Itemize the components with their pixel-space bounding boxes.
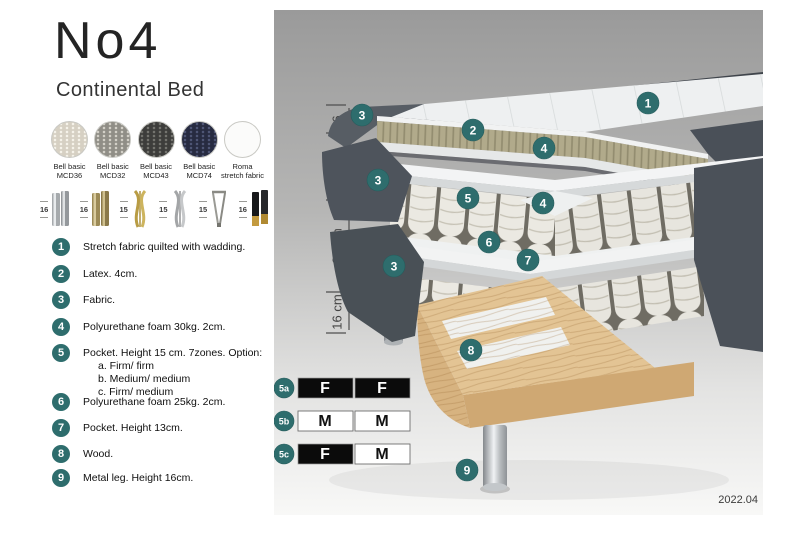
swatch-label: Bell basic MCD74 [183, 162, 215, 181]
part-description: Polyurethane foam 25kg. 2cm. [83, 393, 225, 409]
swatch-label: Roma stretch fabric [221, 162, 264, 181]
leg-height-mark: 16 [80, 201, 88, 218]
svg-text:3: 3 [375, 174, 382, 188]
black-gold-leg-icon [248, 186, 270, 232]
version-stamp: 2022.04 [718, 494, 758, 506]
callout-3-lower: 3 [383, 255, 405, 277]
svg-text:4: 4 [541, 142, 548, 156]
leg-option-brass: 16 [80, 186, 111, 232]
hairpin-leg-icon [208, 186, 230, 232]
part-item-2: 2 Latex. 4cm. [52, 265, 137, 283]
metal-leg-front [480, 425, 510, 494]
leg-options: 16 16 15 15 [40, 186, 270, 232]
swatch-mcd74: Bell basic MCD74 [179, 121, 220, 181]
leg-option-chrome: 16 [40, 186, 71, 232]
swatch-label-top: Bell basic [183, 162, 215, 171]
part-description: Polyurethane foam 30kg. 2cm. [83, 318, 225, 334]
bed-cutaway-illustration: 6 19 cm 27 cm 16 cm [274, 10, 763, 515]
fabric-swatch-circle [51, 121, 88, 158]
part-item-9: 9 Metal leg. Height 16cm. [52, 469, 193, 487]
part-number-badge: 1 [52, 238, 70, 256]
leg-option-black-gold: 16 [239, 186, 270, 232]
part-description: Metal leg. Height 16cm. [83, 469, 193, 485]
leg-option-silver-twist: 15 [159, 186, 190, 232]
part-description: Wood. [83, 445, 113, 461]
part-item-3: 3 Fabric. [52, 291, 115, 309]
fabric-swatch-circle [138, 121, 175, 158]
firmness-letter: F [320, 380, 330, 397]
svg-text:8: 8 [468, 344, 475, 358]
part-number-badge: 5 [52, 344, 70, 362]
gold-twist-leg-icon [129, 186, 151, 232]
swatch-mcd32: Bell basic MCD32 [92, 121, 133, 181]
callout-5: 5 [457, 187, 479, 209]
leg-height-mark: 16 [239, 201, 247, 218]
swatch-label-top: Roma [221, 162, 264, 171]
part-item-8: 8 Wood. [52, 445, 113, 463]
svg-text:4: 4 [540, 197, 547, 211]
swatch-label: Bell basic MCD36 [53, 162, 85, 181]
part-description: Pocket. Height 15 cm. 7zones. Option: a.… [83, 344, 262, 399]
silver-twist-leg-icon [169, 186, 191, 232]
callout-7: 7 [517, 249, 539, 271]
fabric-swatch-circle [181, 121, 218, 158]
callout-2: 2 [462, 119, 484, 141]
leg-height-mark: 16 [40, 201, 48, 218]
part-description: Latex. 4cm. [83, 265, 137, 281]
swatch-label-bottom: stretch fabric [221, 171, 264, 180]
svg-text:3: 3 [391, 260, 398, 274]
firmness-letter: F [377, 380, 387, 397]
page: No4 Continental Bed Bell basic MCD36 Bel… [0, 0, 800, 533]
part-number-badge: 8 [52, 445, 70, 463]
callout-3-top: 3 [351, 104, 373, 126]
svg-text:1: 1 [645, 97, 652, 111]
part-option-b: b. Medium/ medium [98, 373, 262, 386]
fabric-swatch-circle [94, 121, 131, 158]
firmness-letter: F [320, 446, 330, 463]
part-item-7: 7 Pocket. Height 13cm. [52, 419, 183, 437]
dimension-label-16cm: 16 cm [330, 294, 345, 329]
swatch-label-top: Bell basic [140, 162, 172, 171]
svg-text:9: 9 [464, 464, 471, 478]
part-description-main: Pocket. Height 15 cm. 7zones. Option: [83, 347, 262, 360]
part-number-badge: 2 [52, 265, 70, 283]
leg-option-gold-twist: 15 [119, 186, 150, 232]
leg-height-mark: 15 [119, 201, 127, 218]
part-item-4: 4 Polyurethane foam 30kg. 2cm. [52, 318, 225, 336]
swatch-label-bottom: MCD43 [140, 171, 172, 180]
product-title: No4 [54, 14, 161, 69]
svg-text:6: 6 [486, 236, 493, 250]
swatch-label-bottom: MCD74 [183, 171, 215, 180]
swatch-label-bottom: MCD36 [53, 171, 85, 180]
part-description: Fabric. [83, 291, 115, 307]
callout-6: 6 [478, 231, 500, 253]
svg-text:2: 2 [470, 124, 477, 138]
svg-text:7: 7 [525, 254, 532, 268]
firmness-letter: M [375, 446, 388, 463]
firmness-letter: M [375, 413, 388, 430]
leg-height-mark: 15 [159, 201, 167, 218]
callout-9: 9 [456, 459, 478, 481]
part-description: Stretch fabric quilted with wadding. [83, 238, 245, 254]
part-description: Pocket. Height 13cm. [83, 419, 183, 435]
fabric-swatches: Bell basic MCD36 Bell basic MCD32 Bell b… [49, 121, 263, 181]
leg-option-hairpin: 15 [199, 186, 230, 232]
swatch-label-top: Bell basic [53, 162, 85, 171]
firmness-letter: M [318, 413, 331, 430]
swatch-mcd43: Bell basic MCD43 [136, 121, 177, 181]
swatch-label: Bell basic MCD32 [97, 162, 129, 181]
callout-4-lower: 4 [532, 192, 554, 214]
swatch-roma: Roma stretch fabric [222, 121, 263, 181]
part-number-badge: 3 [52, 291, 70, 309]
firmness-row-label: 5b [279, 417, 290, 427]
part-option-a: a. Firm/ firm [98, 360, 262, 373]
product-subtitle: Continental Bed [56, 79, 204, 102]
swatch-mcd36: Bell basic MCD36 [49, 121, 90, 181]
callout-1: 1 [637, 92, 659, 114]
svg-text:3: 3 [359, 109, 366, 123]
part-item-6: 6 Polyurethane foam 25kg. 2cm. [52, 393, 225, 411]
part-number-badge: 6 [52, 393, 70, 411]
leg-height-mark: 15 [199, 201, 207, 218]
brass-leg-icon [89, 186, 111, 232]
swatch-label-bottom: MCD32 [97, 171, 129, 180]
chrome-leg-icon [49, 186, 71, 232]
part-item-1: 1 Stretch fabric quilted with wadding. [52, 238, 245, 256]
firmness-row-label: 5c [279, 450, 289, 460]
part-number-badge: 4 [52, 318, 70, 336]
part-number-badge: 7 [52, 419, 70, 437]
part-item-5: 5 Pocket. Height 15 cm. 7zones. Option: … [52, 344, 262, 399]
fabric-swatch-circle [224, 121, 261, 158]
swatch-label-top: Bell basic [97, 162, 129, 171]
callout-4-upper: 4 [533, 137, 555, 159]
part-number-badge: 9 [52, 469, 70, 487]
swatch-label: Bell basic MCD43 [140, 162, 172, 181]
svg-text:5: 5 [465, 192, 472, 206]
callout-8: 8 [460, 339, 482, 361]
callout-3-middle: 3 [367, 169, 389, 191]
floor-shadow [329, 460, 729, 500]
firmness-row-label: 5a [279, 384, 290, 394]
